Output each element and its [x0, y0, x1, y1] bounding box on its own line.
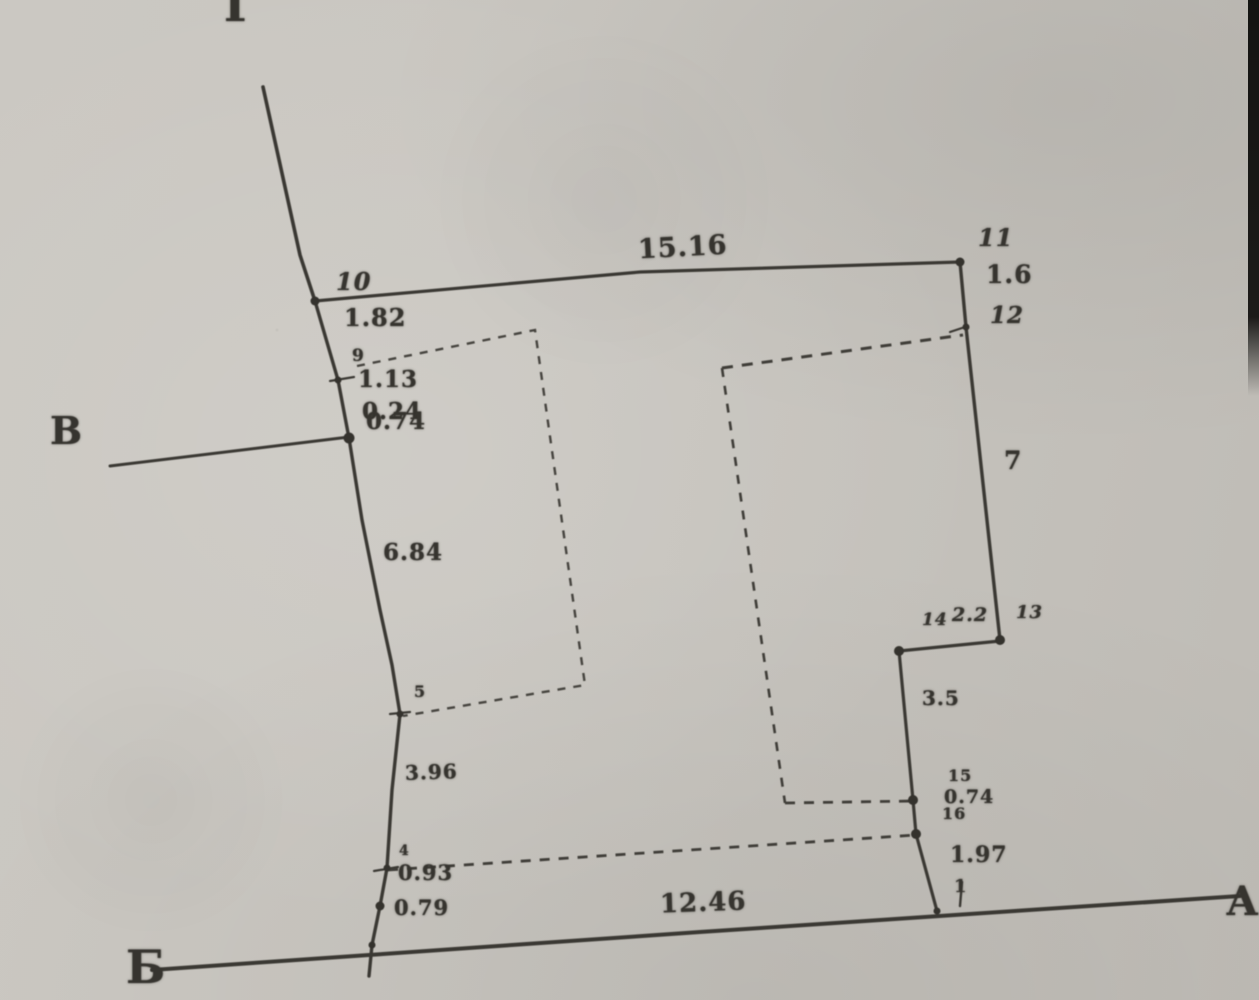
point-9-tick [330, 377, 354, 381]
point-3-marker [376, 902, 385, 911]
distance-10-11: 15.16 [637, 232, 728, 264]
base-junction-marker [934, 908, 941, 915]
point-9-marker [335, 377, 342, 384]
boundary-line-g [263, 87, 315, 301]
distance-11-12: 1.6 [986, 262, 1033, 287]
distance-8-overwrite-b: 0.74 [366, 410, 426, 433]
distance-10-9: 1.82 [344, 306, 406, 330]
point-4-label: 4 [399, 844, 410, 858]
survey-linework [0, 0, 1259, 1000]
survey-sketch-sheet: Г В Б А 10 11 12 9 5 4 14 13 15 16 1 15.… [0, 0, 1259, 1000]
tie-line-dashed [388, 835, 916, 870]
distance-9-8: 1.13 [358, 368, 418, 391]
point-15-label: 15 [948, 768, 972, 784]
corner-letter-g: Г [224, 0, 256, 28]
distance-16-1: 1.97 [950, 844, 1008, 866]
point-12-marker [963, 324, 970, 331]
segment-13-14 [899, 641, 1000, 651]
distance-4-3: 0.93 [398, 862, 453, 883]
corner-letter-a: А [1226, 882, 1259, 922]
point-4-marker [384, 865, 391, 872]
distance-5-4: 3.96 [405, 761, 458, 783]
point-16-label: 16 [942, 806, 966, 822]
point-12-label: 12 [990, 304, 1024, 327]
point-11-label: 11 [978, 226, 1013, 250]
point-8-marker [344, 433, 355, 444]
point-10-label: 10 [336, 270, 371, 294]
point-1-label: 1 [954, 878, 968, 896]
point-5-label: 5 [414, 684, 426, 700]
point-9-label: 9 [352, 348, 365, 365]
point-11-marker [956, 258, 965, 267]
distance-baseline: 12.46 [660, 888, 747, 917]
point-2-marker [369, 942, 376, 949]
line-to-v [110, 437, 349, 466]
distance-3-2: 0.79 [394, 897, 449, 918]
ink-layer: Г В Б А 10 11 12 9 5 4 14 13 15 16 1 15.… [0, 0, 1259, 1000]
boundary-line-top [315, 262, 960, 301]
point-14-label: 14 [922, 612, 948, 629]
building-right-dashed-top [722, 335, 963, 368]
distance-14-15: 3.5 [922, 688, 960, 708]
point-5-marker [397, 711, 404, 718]
distance-12-13: 7 [1004, 448, 1022, 473]
scan-edge-strip [1248, 0, 1259, 396]
point-15-marker [908, 795, 918, 805]
distance-14-13: 2.2 [952, 606, 988, 625]
point-10-marker [311, 297, 320, 306]
building-right-dashed-left [722, 368, 785, 803]
point-13-label: 13 [1016, 604, 1043, 622]
point-14-marker [894, 646, 904, 656]
point-13-marker [995, 635, 1005, 645]
corner-letter-v: В [50, 412, 82, 450]
distance-15-16: 0.74 [944, 788, 994, 807]
point-16-marker [911, 829, 921, 839]
corner-letter-b: Б [126, 944, 165, 990]
distance-9-5: 6.84 [383, 541, 443, 564]
building-right-dashed-bottom [785, 801, 913, 803]
